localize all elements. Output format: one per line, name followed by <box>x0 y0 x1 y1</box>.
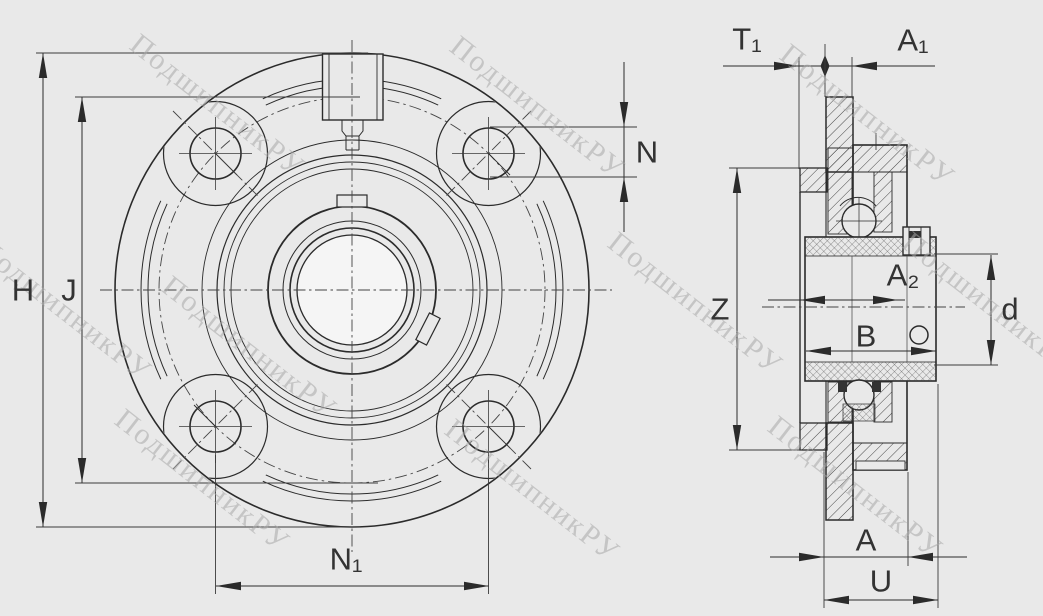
dim-label-A1: A₁ <box>897 23 928 58</box>
dim-label-H: H <box>12 273 34 308</box>
dim-label-N: N <box>636 135 658 170</box>
dim-arrowhead <box>78 458 86 483</box>
section-bearing-bottom <box>828 380 892 422</box>
set-screw <box>910 326 928 344</box>
dim-arrowhead <box>824 596 849 604</box>
watermark: ПодшипникРУ <box>444 30 631 187</box>
dim-arrowhead <box>78 97 86 122</box>
dim-label-U: U <box>870 564 892 599</box>
dim-arrowhead <box>733 168 741 193</box>
dim-arrowhead <box>852 62 877 70</box>
dim-label-T1: T₁ <box>732 22 761 57</box>
dim-arrowhead <box>987 340 995 365</box>
dim-arrowhead <box>733 425 741 450</box>
dim-arrowhead <box>799 553 824 561</box>
grease-fitting <box>323 54 384 150</box>
watermark: ПодшипникРУ <box>124 28 311 185</box>
dim-label-A: A <box>856 523 877 558</box>
dim-label-B: B <box>856 319 877 354</box>
dim-arrowhead <box>620 102 628 127</box>
watermark: ПодшипникРУ <box>0 232 158 389</box>
dim-arrowhead <box>987 255 995 280</box>
dim-label-Z: Z <box>711 292 730 327</box>
watermark: ПодшипникРУ <box>439 413 626 570</box>
ring-tab-side <box>416 313 440 345</box>
drawing-svg: ПодшипникРУ ПодшипникРУ ПодшипникРУ Подш… <box>0 0 1043 616</box>
dim-label-d: d <box>1001 292 1018 327</box>
dim-arrowhead <box>620 177 628 202</box>
dim-label-A2: A₂ <box>887 258 920 293</box>
dim-arrowhead <box>39 53 47 78</box>
dim-arrowhead <box>39 502 47 527</box>
dim-label-N1: N₁ <box>330 542 363 577</box>
grease-nipple <box>342 120 363 150</box>
dim-arrowhead <box>464 582 489 590</box>
dim-arrowhead <box>913 596 938 604</box>
watermark: ПодшипникРУ <box>602 226 789 383</box>
dim-label-J: J <box>61 273 77 308</box>
dim-arrowhead <box>216 582 241 590</box>
bearing-technical-drawing: ПодшипникРУ ПодшипникРУ ПодшипникРУ Подш… <box>0 0 1043 616</box>
